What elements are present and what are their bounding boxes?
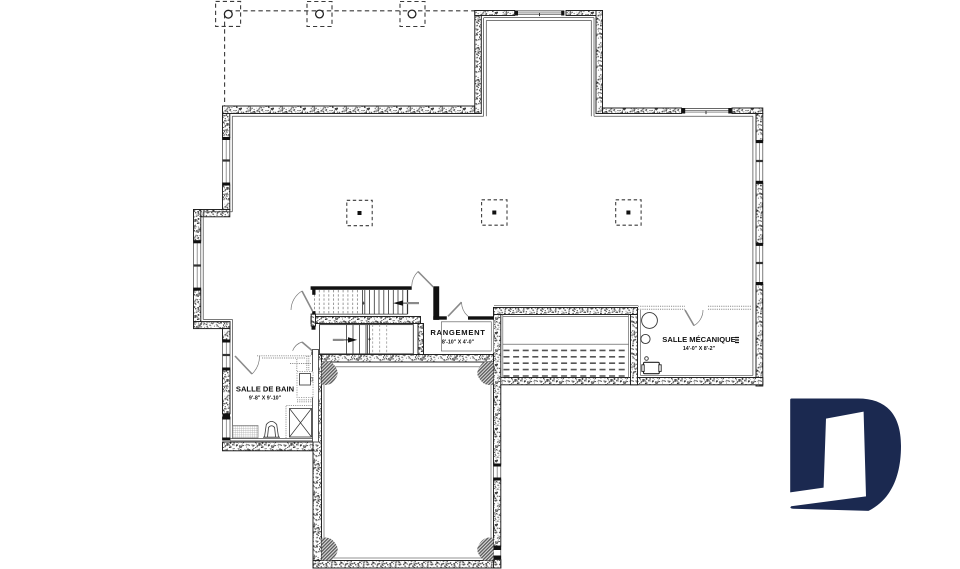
svg-text:14'-0" X 8'-2": 14'-0" X 8'-2" bbox=[683, 346, 716, 352]
svg-text:SALLE DE BAIN: SALLE DE BAIN bbox=[236, 385, 294, 394]
svg-text:9'-8" X 9'-10": 9'-8" X 9'-10" bbox=[249, 396, 282, 402]
svg-text:RANGEMENT: RANGEMENT bbox=[430, 328, 485, 337]
svg-text:8'-10" X 4'-0": 8'-10" X 4'-0" bbox=[442, 340, 475, 346]
svg-text:SALLE MÉCANIQUE: SALLE MÉCANIQUE bbox=[662, 335, 735, 344]
